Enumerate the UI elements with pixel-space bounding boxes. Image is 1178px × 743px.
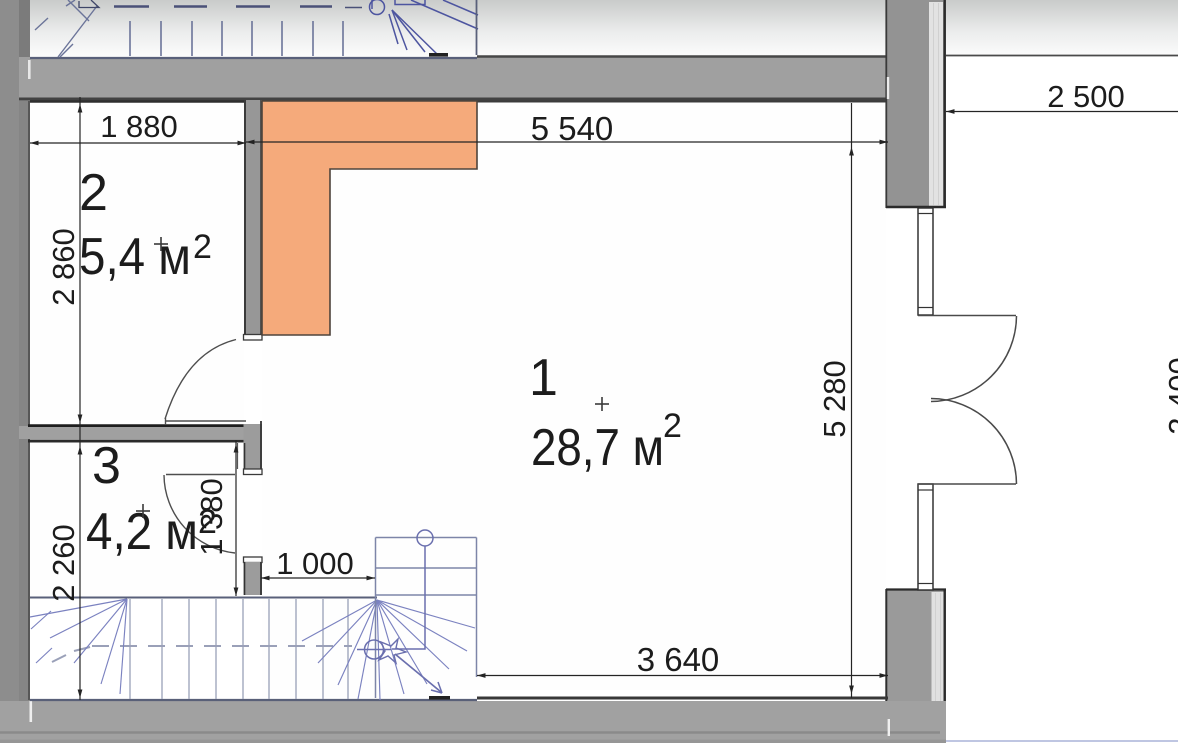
svg-text:28,7 м: 28,7 м — [531, 419, 664, 477]
svg-text:1: 1 — [529, 349, 558, 407]
svg-text:2: 2 — [193, 228, 212, 266]
svg-text:1 880: 1 880 — [100, 109, 178, 144]
svg-text:5 540: 5 540 — [531, 110, 614, 147]
svg-text:2 400: 2 400 — [1162, 357, 1178, 435]
svg-text:2 500: 2 500 — [1047, 79, 1125, 114]
svg-text:2: 2 — [663, 407, 682, 445]
svg-text:5,4 м: 5,4 м — [79, 228, 191, 286]
svg-text:2: 2 — [79, 164, 108, 222]
svg-text:3 640: 3 640 — [637, 641, 720, 678]
svg-text:2: 2 — [198, 503, 217, 541]
svg-text:2 860: 2 860 — [46, 228, 81, 306]
svg-text:3: 3 — [92, 437, 121, 495]
svg-text:5 280: 5 280 — [817, 360, 852, 438]
svg-text:2 260: 2 260 — [46, 524, 81, 602]
svg-text:1 000: 1 000 — [276, 546, 354, 581]
